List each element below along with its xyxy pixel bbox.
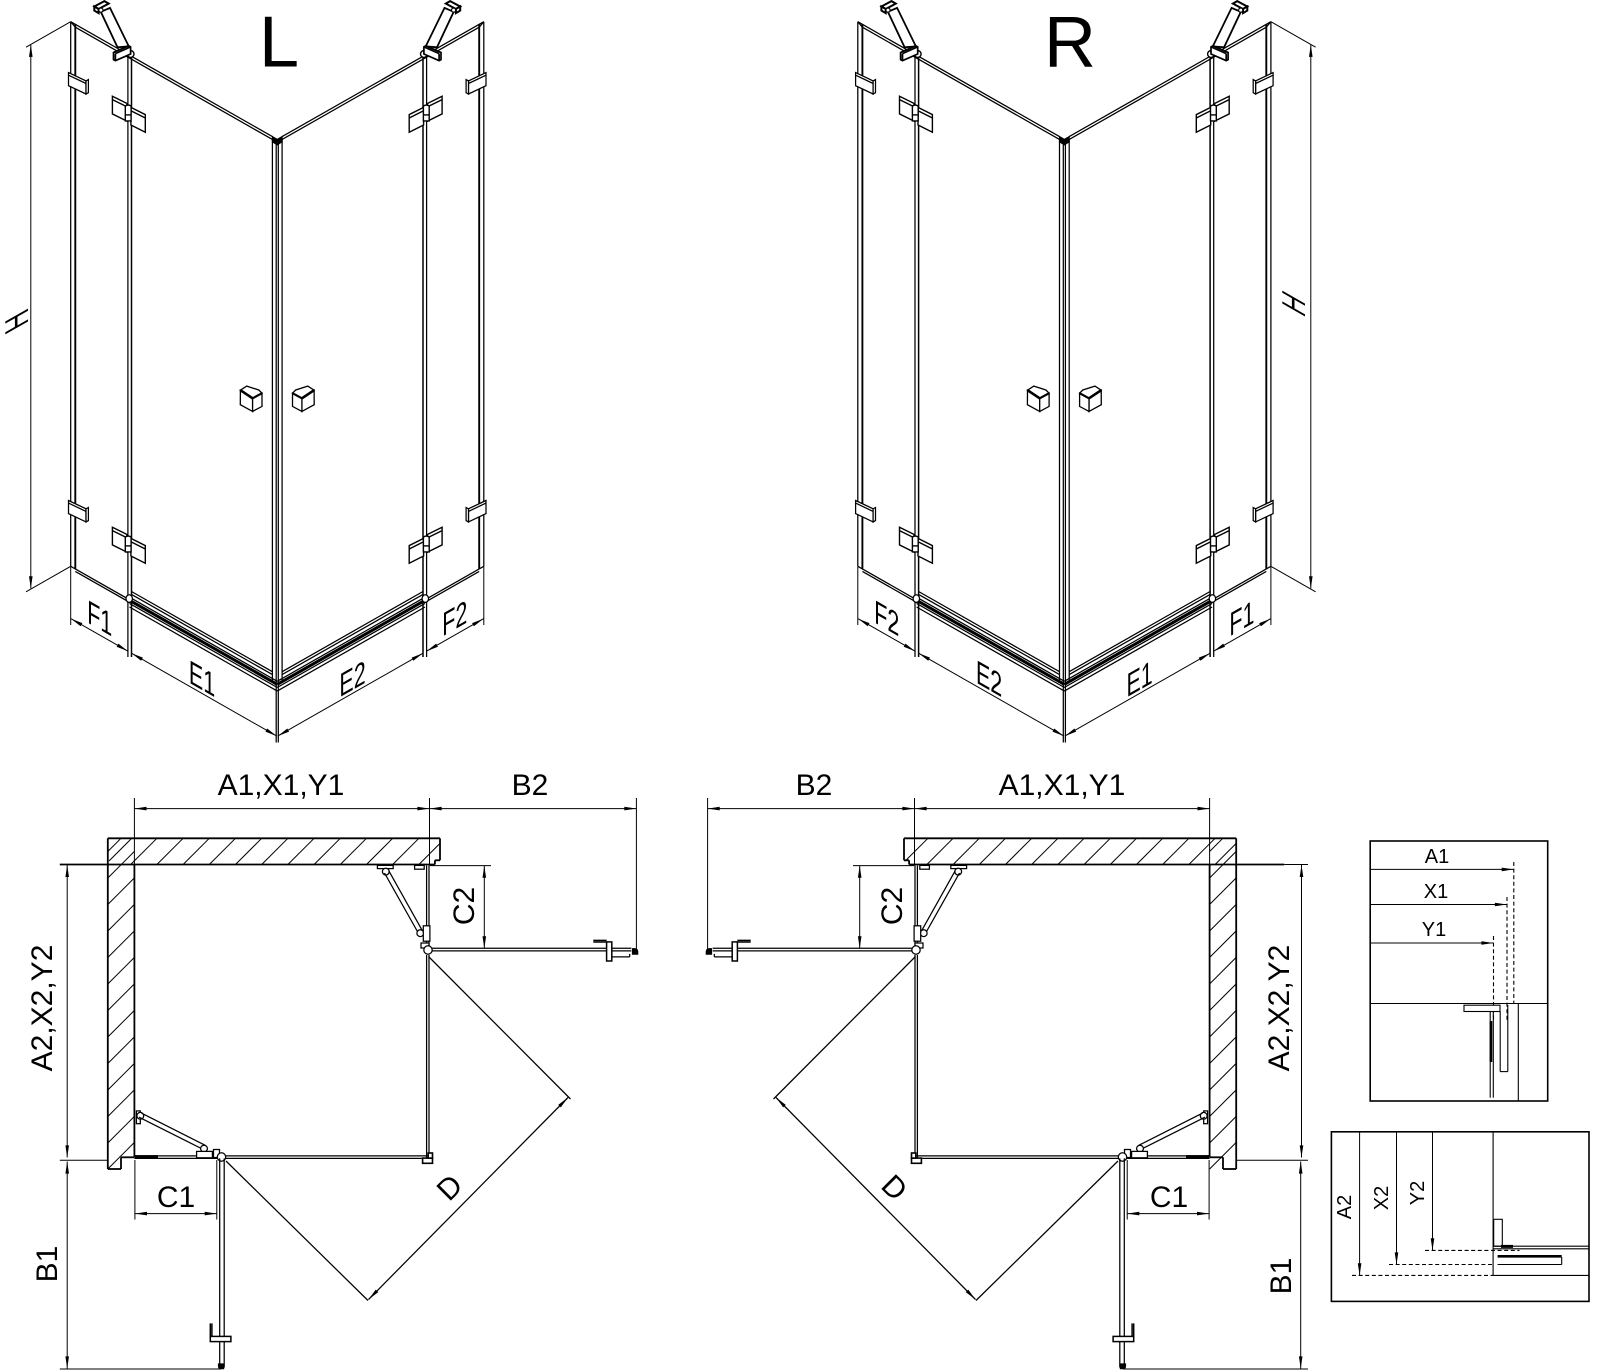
svg-text:B1: B1: [1265, 1258, 1298, 1295]
svg-text:F1: F1: [87, 594, 112, 645]
svg-text:X1: X1: [1424, 881, 1448, 903]
svg-text:Y1: Y1: [1422, 919, 1446, 941]
svg-text:H: H: [0, 302, 35, 340]
svg-text:X2: X2: [1371, 1186, 1393, 1210]
svg-text:A1,X1,Y1: A1,X1,Y1: [218, 769, 345, 802]
svg-text:C1: C1: [157, 1181, 195, 1214]
svg-text:E2: E2: [976, 654, 1002, 705]
svg-text:F1: F1: [1229, 594, 1254, 645]
svg-text:Y2: Y2: [1407, 1181, 1429, 1205]
svg-text:H: H: [1276, 285, 1313, 323]
svg-text:B1: B1: [31, 1246, 64, 1283]
svg-text:D: D: [875, 1169, 914, 1208]
svg-text:L: L: [259, 3, 299, 83]
svg-text:D: D: [431, 1169, 470, 1208]
svg-text:A1: A1: [1425, 846, 1449, 868]
svg-text:E1: E1: [1126, 654, 1152, 705]
svg-text:F2: F2: [874, 594, 899, 645]
svg-text:F2: F2: [442, 594, 467, 645]
svg-text:C2: C2: [876, 887, 909, 925]
svg-text:B2: B2: [796, 769, 833, 802]
svg-text:B2: B2: [512, 769, 549, 802]
svg-text:R: R: [1044, 3, 1096, 83]
svg-text:A2,X2,Y2: A2,X2,Y2: [1263, 945, 1296, 1072]
svg-text:E1: E1: [189, 654, 215, 705]
svg-text:C1: C1: [1150, 1181, 1188, 1214]
svg-text:E2: E2: [339, 654, 365, 705]
svg-text:A2: A2: [1334, 1195, 1356, 1219]
svg-text:A1,X1,Y1: A1,X1,Y1: [999, 769, 1126, 802]
svg-text:C2: C2: [448, 887, 481, 925]
svg-text:A2,X2,Y2: A2,X2,Y2: [26, 945, 59, 1072]
